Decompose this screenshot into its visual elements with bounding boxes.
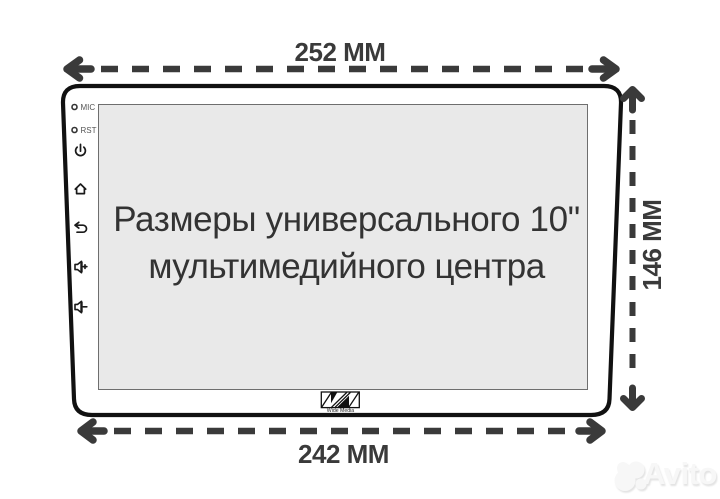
svg-text:Avito: Avito (643, 456, 717, 491)
